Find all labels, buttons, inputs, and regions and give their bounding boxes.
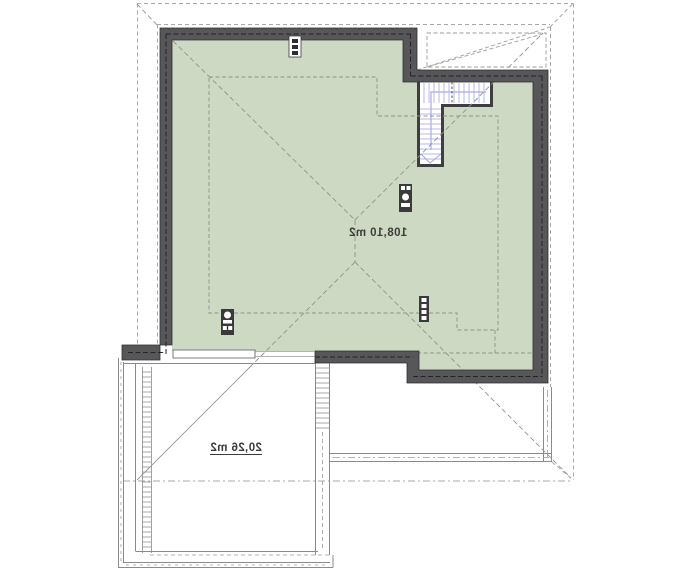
attic-area-text: 108,10 m2 xyxy=(349,227,408,239)
garage-area-label: 20,26 m2 xyxy=(210,442,262,455)
garage-area-text: 20,26 m2 xyxy=(210,442,262,454)
chimney-top xyxy=(289,36,301,57)
floor-plan-drawing: 108,10 m2 20,26 m2 xyxy=(0,0,700,575)
terrace-eave-strips xyxy=(330,387,552,462)
garage-roof-linework xyxy=(119,358,553,568)
vent-right xyxy=(419,296,429,322)
chimney-left xyxy=(221,309,234,335)
garage-left-wall-hatch xyxy=(142,367,152,553)
garage-hip-line xyxy=(137,363,254,480)
notch-roof-outline xyxy=(417,27,550,70)
chimney-center xyxy=(399,184,412,212)
attic-area-label: 108,10 m2 xyxy=(349,227,408,239)
floor-plan-canvas: 108,10 m2 20,26 m2 xyxy=(0,0,700,575)
opening-beam xyxy=(173,350,315,358)
